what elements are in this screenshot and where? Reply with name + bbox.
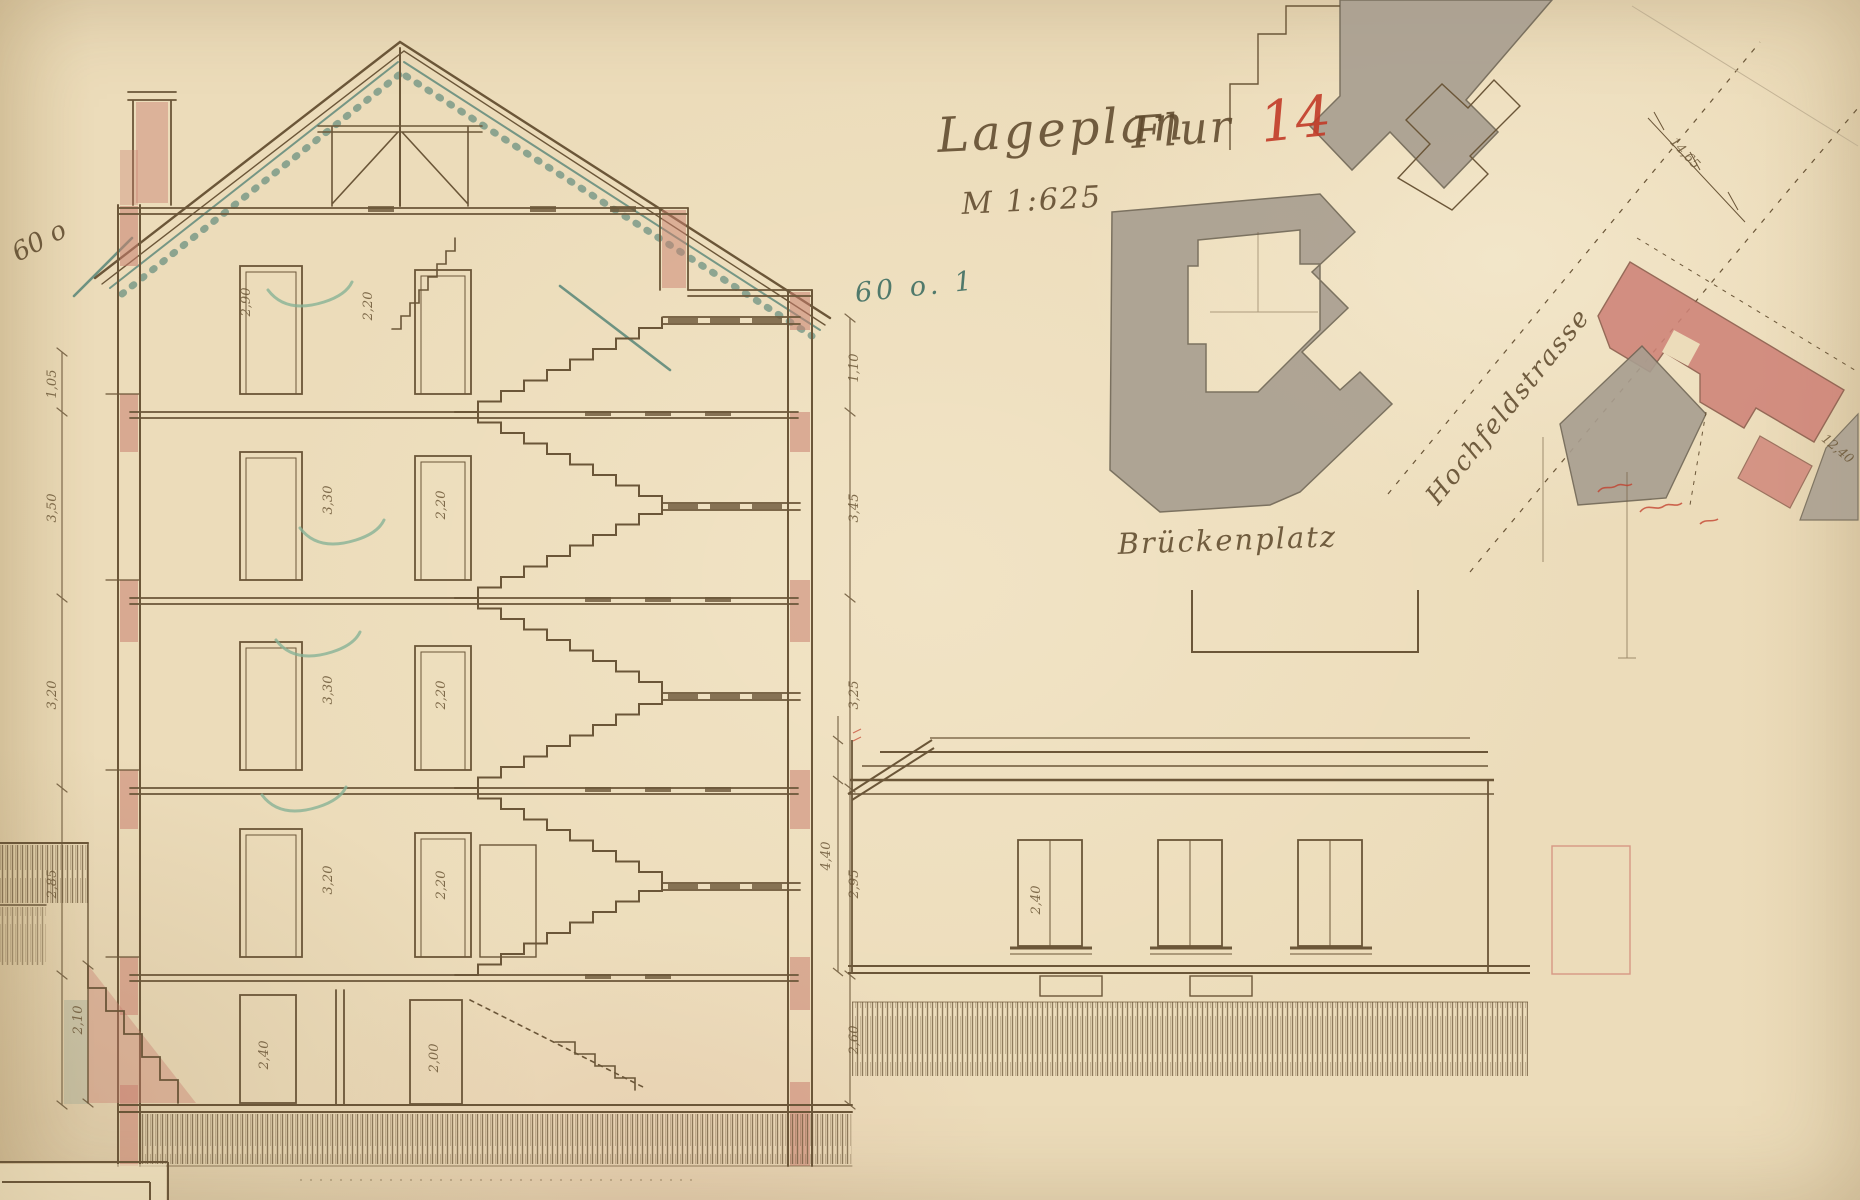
title-flur-number: 14: [1257, 84, 1335, 156]
dim-left-0: 1,05: [45, 370, 60, 399]
dim-right-4: 2,60: [847, 1026, 862, 1056]
attic-post: [660, 208, 688, 290]
dim-left-2: 3,20: [45, 681, 60, 710]
scale-label: M 1:625: [960, 180, 1103, 222]
outbuilding-ground-hatch: [852, 1002, 1528, 1076]
dim-outbuilding-0: 2,40: [1029, 886, 1044, 916]
dimension-chains: [57, 314, 855, 1109]
red-block-annex: [1738, 436, 1812, 508]
scanned-architectural-drawing: Lageplan Flur 14 M 1:625 Brückenplatz Ho…: [0, 0, 1860, 1200]
neighbor-gray-se: [1560, 346, 1706, 505]
dim-room-9: 2,00: [427, 1044, 442, 1074]
dim-left-4: 2,10: [71, 1006, 86, 1036]
dim-outbuilding-1: 4,40: [819, 842, 834, 872]
floor-slabs: [118, 206, 852, 1112]
dim-right-2: 3,25: [847, 681, 862, 710]
dim-room-6: 3,20: [321, 866, 336, 895]
outbuilding-dim-line: [833, 716, 861, 976]
platz-bracket: [1192, 590, 1418, 652]
dim-room-1: 2,20: [361, 292, 376, 322]
site-plan: [1110, 0, 1858, 658]
title-flur: Flur: [1128, 101, 1235, 159]
dim-left-1: 3,50: [45, 494, 60, 523]
dim-right-0: 1,10: [847, 354, 862, 383]
drawing-svg: Lageplan Flur 14 M 1:625 Brückenplatz Ho…: [0, 0, 1860, 1200]
staircase-flights: [392, 238, 662, 1090]
dim-left-3: 2,85: [45, 870, 60, 900]
dim-room-2: 3,30: [321, 486, 336, 515]
note-left: 60 o: [7, 215, 71, 268]
dim-right-3: 2,95: [847, 870, 862, 900]
dim-right-1: 3,45: [847, 494, 862, 523]
building-cross-section: [0, 42, 855, 1166]
dim-room-7: 2,20: [434, 871, 449, 901]
dim-room-0: 2,90: [239, 288, 254, 318]
green-check-annotations: [262, 282, 384, 811]
note-right: 60 o. 1: [853, 265, 977, 308]
dim-room-4: 3,30: [321, 676, 336, 705]
outbuilding-elevation: [833, 716, 1630, 1076]
chimney: [120, 92, 176, 205]
interior-doors: [240, 266, 536, 1105]
red-outline-box: [1552, 846, 1630, 974]
bottom-left-frame: [0, 1162, 700, 1200]
right-exterior-wall: [788, 290, 812, 1166]
dim-room-3: 2,20: [434, 491, 449, 521]
block-corner-gray: [1110, 194, 1392, 512]
street-label: Hochfeldstrasse: [1419, 302, 1596, 511]
dim-room-5: 2,20: [434, 681, 449, 711]
dim-room-8: 2,40: [257, 1041, 272, 1071]
platz-label: Brückenplatz: [1116, 519, 1338, 561]
block-upper-gray: [1310, 0, 1552, 188]
dim-plan-0: 14,65: [1666, 135, 1702, 172]
